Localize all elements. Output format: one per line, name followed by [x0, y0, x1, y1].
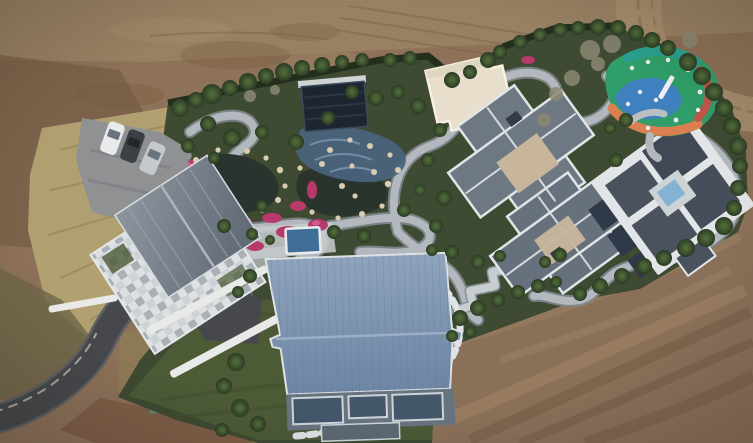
aerial-photo — [0, 0, 753, 443]
vignette-overlay — [0, 0, 753, 443]
